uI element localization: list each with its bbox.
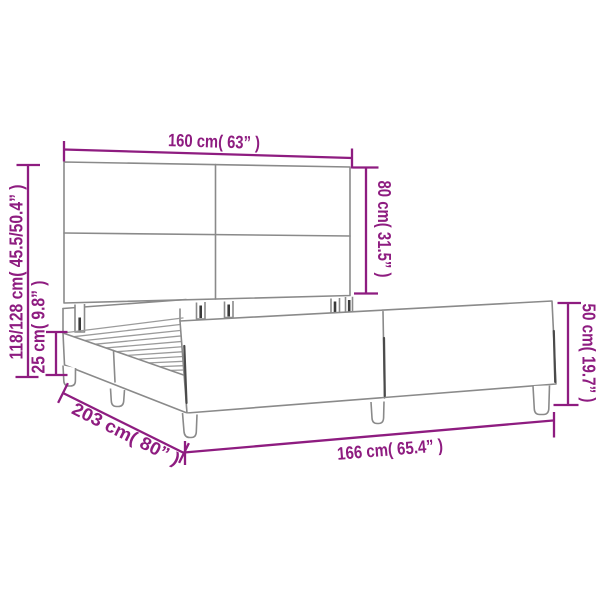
slat-line: [139, 357, 184, 360]
slat-line: [149, 361, 183, 363]
dimension-label-frame-length: 203 cm( 80” ): [69, 399, 184, 470]
bed-leg: [371, 402, 384, 424]
bed-leg: [111, 389, 125, 407]
dimension-headboard-height: 80 cm( 31.5” ): [353, 168, 395, 294]
slat-line: [160, 366, 183, 367]
slat-line: [128, 352, 184, 356]
diagram-canvas: 160 cm( 63” ) 80 cm( 31.5” ) 118/128 cm(…: [0, 0, 600, 600]
bed-frame-drawing: [63, 162, 556, 438]
headboard: [64, 162, 350, 303]
headboard-outline: [64, 162, 350, 303]
bed-leg: [533, 386, 550, 415]
dimension-label-overall-height: 118/128 cm( 45.5/50.4” ): [7, 185, 27, 360]
slat-line: [85, 330, 184, 340]
foot-rail-right-edge-shadow: [554, 331, 555, 382]
slat-line: [74, 324, 184, 337]
dimension-label-footend-height: 50 cm( 19.7” ): [579, 304, 599, 403]
dimension-base-height: 25 cm( 9.8” ): [29, 281, 68, 376]
dimension-label-headboard-width: 160 cm( 63” ): [168, 130, 261, 153]
foot-rail-seam-shadow: [384, 338, 385, 396]
dimension-frame-width: 166 cm( 65.4” ): [184, 412, 554, 465]
dimension-label-base-height: 25 cm( 9.8” ): [29, 281, 49, 374]
dimension-tick: [58, 383, 68, 403]
slat-line: [117, 347, 184, 352]
foot-rail: [180, 301, 556, 413]
dimension-label-headboard-height: 80 cm( 31.5” ): [374, 181, 394, 278]
dimension-footend-height: 50 cm( 19.7” ): [554, 303, 599, 405]
bed-frame-dimension-diagram: 160 cm( 63” ) 80 cm( 31.5” ) 118/128 cm(…: [0, 0, 600, 600]
foot-rail-panel: [180, 301, 556, 413]
bed-leg: [183, 413, 198, 438]
dimension-label-frame-width: 166 cm( 65.4” ): [336, 435, 443, 464]
